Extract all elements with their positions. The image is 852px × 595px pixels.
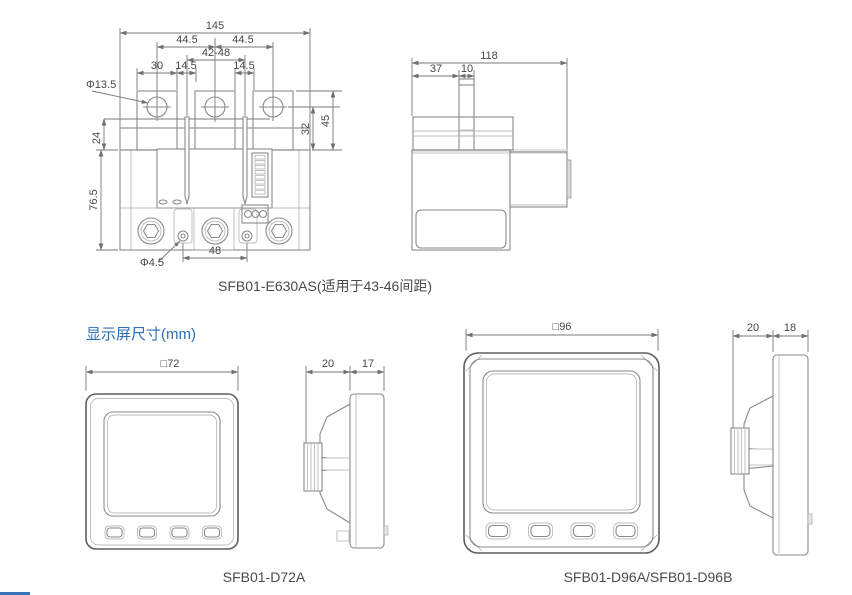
dim-37: 37 xyxy=(430,63,442,75)
dim-pitch-left: 44.5 xyxy=(176,34,197,46)
d96-side-drawing: 20 18 xyxy=(731,322,812,555)
d96-front-drawing: □96 xyxy=(464,321,659,553)
section-heading: 显示屏尺寸(mm) xyxy=(86,323,196,344)
relay-front-drawing: 145 44.5 44.5 42-48 30 14.5 14.5 Φ13.5 2… xyxy=(86,20,342,269)
dim-d96-depth-front: 18 xyxy=(784,322,796,334)
dim-d96-depth-rear: 20 xyxy=(747,322,759,334)
datasheet-page: 145 44.5 44.5 42-48 30 14.5 14.5 Φ13.5 2… xyxy=(0,0,852,595)
dim-body-height: 76.5 xyxy=(88,189,100,210)
dim-screw-diameter: Φ4.5 xyxy=(140,257,164,269)
d72-front-drawing: □72 xyxy=(86,358,238,549)
dim-overall-depth: 118 xyxy=(480,50,498,62)
dim-10: 10 xyxy=(461,63,473,75)
dim-45: 45 xyxy=(320,115,332,127)
relay-caption: SFB01-E630AS(适用于43-46间距) xyxy=(200,276,450,296)
dim-d72-depth-front: 17 xyxy=(362,358,374,370)
dim-hole-diameter: Φ13.5 xyxy=(86,79,116,91)
technical-drawing-canvas: 145 44.5 44.5 42-48 30 14.5 14.5 Φ13.5 2… xyxy=(0,0,852,595)
dim-d96-front-size: □96 xyxy=(553,321,572,333)
d72-side-drawing: 20 17 xyxy=(304,358,388,548)
dim-gap-right: 14.5 xyxy=(233,60,254,72)
dim-d72-front-size: □72 xyxy=(161,358,180,370)
d96-caption: SFB01-D96A/SFB01-D96B xyxy=(538,569,758,585)
dim-d72-depth-rear: 20 xyxy=(322,358,334,370)
d72-caption: SFB01-D72A xyxy=(189,569,339,585)
dim-overall-width: 145 xyxy=(206,20,224,32)
dim-busbar-range: 42-48 xyxy=(202,47,230,59)
dim-32: 32 xyxy=(300,123,312,135)
dim-gap-left: 14.5 xyxy=(175,60,196,72)
dim-tab-width: 30 xyxy=(151,60,163,72)
dim-24: 24 xyxy=(91,132,103,144)
dim-screw-spacing: 48 xyxy=(209,245,221,257)
relay-side-drawing: 118 37 10 xyxy=(412,50,571,250)
dim-pitch-right: 44.5 xyxy=(232,34,253,46)
